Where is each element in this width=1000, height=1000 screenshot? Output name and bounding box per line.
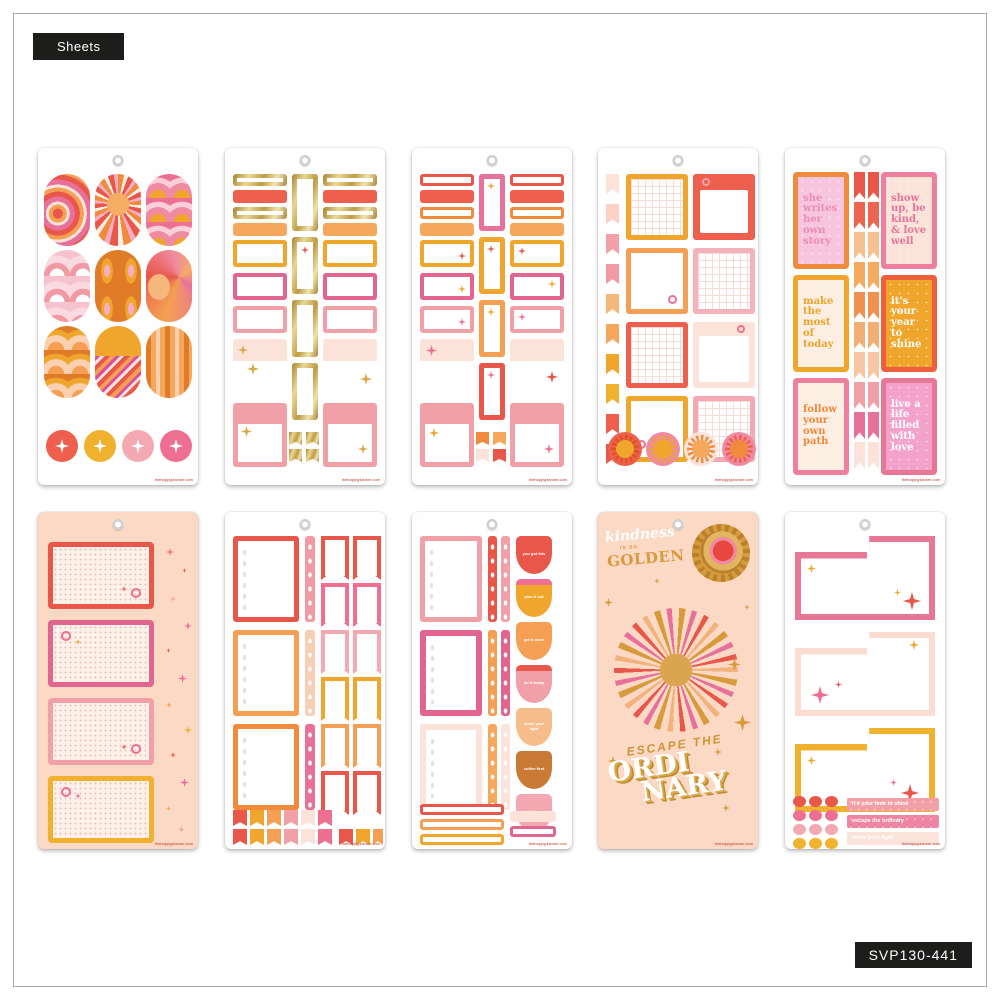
deco-star: [170, 752, 176, 758]
outline-bar-sticker: [510, 826, 556, 837]
hole-punch: [860, 519, 871, 530]
starburst-circle-sticker: [84, 430, 116, 462]
badge-text: get it done: [524, 637, 544, 642]
gold-tab-sticker: [306, 449, 319, 462]
banner-flag-sticker: [321, 583, 349, 627]
tall-box-sticker: [479, 300, 505, 357]
outline-box-sticker: [420, 306, 474, 333]
escape-the-ordinary-sticker: ESCAPE THE ORDI NARY: [598, 727, 758, 811]
checklist-box-sticker: [420, 630, 482, 716]
dot-strip-sticker: [488, 724, 497, 810]
quote-text: show up, be kind, & love well: [891, 194, 927, 248]
bar-text: it's your time to shine: [852, 801, 909, 807]
starburst-circle-sticker: [46, 430, 78, 462]
flag-tab-sticker: [606, 384, 619, 404]
tall-box-sticker: [479, 363, 505, 420]
tab-sticker: [250, 810, 264, 826]
text-bar-sticker: it's your time to shine: [847, 798, 939, 811]
dot-strip-sticker: [305, 536, 315, 622]
dot-strip-sticker: [305, 724, 315, 810]
badge-text: do it today: [524, 680, 544, 685]
sun-circle-sticker: [646, 432, 680, 466]
outline-box-sticker: [420, 240, 474, 267]
oval-sticker-waves: [146, 326, 192, 398]
flag-tab-sticker: [868, 412, 879, 439]
deco-star: [182, 568, 187, 573]
flag-tab-sticker: [606, 204, 619, 224]
sun-circle-sticker: [722, 432, 756, 466]
badge-text: coffee first: [524, 766, 544, 771]
outline-box-sticker: [510, 240, 564, 267]
half-box-sticker: [510, 403, 564, 467]
sun-face: [148, 274, 170, 300]
bar-text: shine your light: [852, 835, 893, 841]
dot-sticker: [809, 824, 822, 835]
dot-strip-sticker: [501, 536, 510, 622]
outline-box-sticker: [510, 306, 564, 333]
dot-sticker: [793, 810, 806, 821]
half-box-sticker: [510, 339, 564, 397]
dot-strip-sticker: [305, 630, 315, 716]
watermark: thehappyplanner.com: [529, 477, 567, 482]
starburst-circle-sticker: [160, 430, 192, 462]
deco-star: [184, 726, 192, 734]
flag-tab-sticker: [854, 262, 865, 289]
tab-sticker: [301, 810, 315, 826]
hole-punch: [300, 155, 311, 166]
hole-punch: [487, 155, 498, 166]
solid-bar-sticker: [420, 223, 474, 236]
flag-tab-sticker: [854, 412, 865, 439]
deco-star: [604, 598, 613, 607]
quote-sticker: it's your year to shine: [881, 275, 937, 372]
watermark: thehappyplanner.com: [902, 841, 940, 846]
flag-tab-sticker: [854, 172, 865, 199]
flag-tab-sticker: [854, 382, 865, 409]
sticker-sheet-checklists-flags: thehappyplanner.com: [225, 512, 385, 849]
dot-strip-sticker: [488, 630, 497, 716]
flag-tab-sticker: [606, 324, 619, 344]
sheets-tab[interactable]: Sheets: [33, 33, 124, 60]
flag-tab-sticker: [868, 292, 879, 319]
sun-circle-sticker: [608, 432, 642, 466]
solid-bar-sticker: [510, 811, 556, 822]
badge-text: shine your light: [521, 721, 547, 731]
banner-flag-sticker: [353, 583, 381, 627]
flag-tab-sticker: [854, 292, 865, 319]
quote-sticker: follow your own path: [793, 378, 849, 475]
dot-sticker: [809, 838, 822, 849]
half-box-sticker: [323, 339, 377, 397]
gold-tall-box-sticker: [292, 237, 318, 294]
deco-star: [170, 596, 176, 602]
outline-box-sticker: [510, 273, 564, 300]
quote-text: make the most of today: [803, 297, 839, 351]
watermark: thehappyplanner.com: [902, 477, 940, 482]
checklist-box-sticker: [420, 536, 482, 622]
tab-sticker: [267, 829, 281, 845]
gold-outline-bar-sticker: [323, 174, 377, 186]
outline-box-sticker: [323, 273, 377, 300]
product-code-badge: SVP130-441: [855, 942, 972, 968]
gold-tab-sticker: [289, 432, 302, 445]
flag-tab-sticker: [868, 202, 879, 229]
quote-text: follow your own path: [803, 405, 839, 448]
dotted-box-sticker: [48, 542, 154, 609]
gold-outline-bar-sticker: [233, 207, 287, 219]
tab-sticker: [284, 829, 298, 845]
half-box-sticker: [420, 403, 474, 467]
outline-bar-sticker: [510, 174, 564, 186]
banner-flag-sticker: [321, 724, 349, 768]
grid-box-sticker: [626, 322, 688, 388]
sticker-sheet-folder-boxes: it's your time to shine escape the ordin…: [785, 512, 945, 849]
watermark: thehappyplanner.com: [529, 841, 567, 846]
banner-flag-sticker: [353, 630, 381, 674]
text-bar-sticker: escape the ordinary: [847, 815, 939, 828]
flag-tab-sticker: [854, 442, 865, 469]
checklist-box-sticker: [233, 536, 299, 622]
dot-strip-sticker: [488, 536, 497, 622]
sticker-sheet-dotted-boxes: thehappyplanner.com: [38, 512, 198, 849]
badge-sticker: coffee first: [516, 751, 552, 789]
outline-bar-sticker: [420, 834, 504, 845]
banner-flag-sticker: [353, 771, 381, 815]
deco-star: [178, 826, 185, 833]
deco-star: [166, 548, 174, 556]
badge-sticker: plan it out: [516, 579, 552, 617]
header-box-sticker: [693, 322, 755, 388]
deco-star: [166, 806, 171, 811]
badge-sticker: get it done: [516, 622, 552, 660]
oval-sticker-sunset-chevron: [95, 326, 141, 398]
starburst-circle-sticker: [122, 430, 154, 462]
header-box-sticker: [693, 174, 755, 240]
solid-bar-sticker: [323, 190, 377, 203]
quote-text: it's your year to shine: [891, 297, 927, 351]
hole-punch: [487, 519, 498, 530]
solid-bar-sticker: [510, 190, 564, 203]
oval-sticker-scallop-pink: [44, 250, 90, 322]
oval-sticker-swirl: [44, 174, 90, 246]
sticker-sheet-gold-labels: thehappyplanner.com: [225, 148, 385, 485]
badge-text: plan it out: [524, 594, 543, 599]
outline-box-sticker: [233, 306, 287, 333]
folder-grid-box-sticker: [795, 536, 935, 620]
badge-text: you got this: [523, 551, 546, 556]
dot-sticker: [793, 796, 806, 807]
badge-sticker: do it today: [516, 665, 552, 703]
hole-punch: [860, 155, 871, 166]
banner-flag-sticker: [353, 724, 381, 768]
checklist-box-sticker: [233, 724, 299, 810]
sticker-sheet-escape-the-ordinary: kindness is so GOLDEN ESCAPE THE ORDI NA…: [598, 512, 758, 849]
banner-flag-sticker: [353, 536, 381, 580]
dot-sticker: [825, 796, 838, 807]
tab-sticker: [493, 449, 506, 462]
half-box-sticker: [233, 403, 287, 467]
watermark: thehappyplanner.com: [715, 477, 753, 482]
banner-flag-sticker: [321, 536, 349, 580]
tab-sticker: [233, 810, 247, 826]
quote-text: live a life filled with love: [891, 400, 927, 454]
outline-bar-sticker: [420, 207, 474, 219]
gold-outline-bar-sticker: [233, 174, 287, 186]
tab-sticker: [267, 810, 281, 826]
watermark: thehappyplanner.com: [342, 477, 380, 482]
banner-flag-sticker: [321, 677, 349, 721]
flag-tab-sticker: [854, 202, 865, 229]
deco-star: [654, 578, 660, 584]
quote-sticker: she writes her own story: [793, 172, 849, 269]
gold-tab-sticker: [289, 449, 302, 462]
dot-sticker: [809, 810, 822, 821]
gold-outline-bar-sticker: [323, 207, 377, 219]
oval-sticker-sunburst: [95, 174, 141, 246]
dot-sticker: [825, 838, 838, 849]
quote-sticker: make the most of today: [793, 275, 849, 372]
deco-star: [178, 674, 187, 683]
hole-punch: [300, 519, 311, 530]
tall-box-sticker: [479, 174, 505, 231]
deco-star: [180, 778, 189, 787]
checklist-box-sticker: [420, 724, 482, 810]
flag-tab-sticker: [868, 442, 879, 469]
half-box-sticker: [420, 339, 474, 397]
deco-star: [744, 604, 750, 610]
banner-flag-sticker: [353, 677, 381, 721]
tab-sticker: [318, 810, 332, 826]
flag-tab-sticker: [868, 352, 879, 379]
outline-box-sticker: [323, 306, 377, 333]
watermark: thehappyplanner.com: [342, 841, 380, 846]
folder-grid-box-sticker: [795, 632, 935, 716]
outline-box-sticker: [626, 248, 688, 314]
flag-tab-sticker: [868, 172, 879, 199]
badge-sticker: you got this: [516, 536, 552, 574]
outline-bar-sticker: [420, 804, 504, 815]
dot-strip-sticker: [501, 724, 510, 810]
outline-box-sticker: [420, 273, 474, 300]
tab-sticker: [250, 829, 264, 845]
flag-tab-sticker: [606, 294, 619, 314]
watermark: thehappyplanner.com: [155, 477, 193, 482]
dot-sticker: [809, 796, 822, 807]
flag-tab-sticker: [868, 382, 879, 409]
dotted-box-sticker: [48, 620, 154, 687]
deco-star: [722, 804, 730, 812]
outline-bar-sticker: [510, 207, 564, 219]
tab-sticker: [476, 432, 489, 445]
outline-bar-sticker: [420, 819, 504, 830]
half-box-sticker: [323, 403, 377, 467]
solid-bar-sticker: [420, 190, 474, 203]
sticker-sheet-checklists-badges: you got this plan it out get it done do …: [412, 512, 572, 849]
watermark: thehappyplanner.com: [155, 841, 193, 846]
quote-sticker: live a life filled with love: [881, 378, 937, 475]
flag-tab-sticker: [854, 352, 865, 379]
solid-bar-sticker: [233, 190, 287, 203]
bar-text: escape the ordinary: [852, 818, 904, 824]
flag-tab-sticker: [868, 262, 879, 289]
sticker-sheet-squares-suns: thehappyplanner.com: [598, 148, 758, 485]
gold-tall-box-sticker: [292, 174, 318, 231]
tab-sticker: [493, 432, 506, 445]
flag-tab-sticker: [854, 232, 865, 259]
flag-tab-sticker: [606, 264, 619, 284]
flag-tab-sticker: [606, 174, 619, 194]
outline-bar-sticker: [420, 174, 474, 186]
sticker-sheet-colored-labels: thehappyplanner.com: [412, 148, 572, 485]
dot-sticker: [825, 810, 838, 821]
oval-sticker-teardrop: [95, 250, 141, 322]
sunburst-face-sticker: [614, 608, 738, 732]
flag-tab-sticker: [868, 232, 879, 259]
sun-circle-sticker: [684, 432, 718, 466]
dot-strip-sticker: [501, 630, 510, 716]
deco-star: [184, 622, 192, 630]
dot-sticker: [825, 824, 838, 835]
hole-punch: [673, 519, 684, 530]
hole-punch: [673, 155, 684, 166]
sticker-sheet-quotes: she writes her own story show up, be kin…: [785, 148, 945, 485]
banner-flag-sticker: [321, 771, 349, 815]
watermark: thehappyplanner.com: [715, 841, 753, 846]
badge-sticker: shine your light: [516, 708, 552, 746]
dot-sticker: [793, 824, 806, 835]
flag-tab-sticker: [606, 354, 619, 374]
tab-sticker: [318, 829, 332, 845]
tab-sticker: [476, 449, 489, 462]
gold-tall-box-sticker: [292, 300, 318, 357]
outline-box-sticker: [233, 273, 287, 300]
gold-tall-box-sticker: [292, 363, 318, 420]
checklist-box-sticker: [233, 630, 299, 716]
oval-sticker-scallop-orange: [44, 326, 90, 398]
banner-flag-sticker: [321, 630, 349, 674]
quote-sticker: show up, be kind, & love well: [881, 172, 937, 269]
solid-bar-sticker: [510, 223, 564, 236]
half-box-sticker: [233, 339, 287, 397]
tab-sticker: [233, 829, 247, 845]
flag-tab-sticker: [854, 322, 865, 349]
gold-sun-medallion-sticker: [692, 524, 750, 582]
grid-box-sticker: [626, 174, 688, 240]
tab-sticker: [284, 810, 298, 826]
gold-tab-sticker: [306, 432, 319, 445]
hole-punch: [113, 155, 124, 166]
flag-tab-sticker: [868, 322, 879, 349]
dotted-box-sticker: [48, 698, 154, 765]
outline-box-sticker: [233, 240, 287, 267]
deco-star: [166, 702, 172, 708]
flag-tab-sticker: [606, 414, 619, 434]
hole-punch: [113, 519, 124, 530]
dotted-box-sticker: [48, 776, 154, 843]
deco-star: [166, 648, 171, 653]
solid-bar-sticker: [233, 223, 287, 236]
kindness-is-golden-sticker: kindness is so GOLDEN: [604, 522, 695, 571]
dot-sticker: [793, 838, 806, 849]
grid-box-sticker: [693, 248, 755, 314]
tab-sticker: [301, 829, 315, 845]
flag-tab-sticker: [606, 234, 619, 254]
quote-text: she writes her own story: [803, 194, 839, 248]
sticker-sheet-retro-ovals: thehappyplanner.com: [38, 148, 198, 485]
solid-bar-sticker: [323, 223, 377, 236]
oval-sticker-sun-face: [146, 250, 192, 322]
outline-box-sticker: [323, 240, 377, 267]
tall-box-sticker: [479, 237, 505, 294]
oval-sticker-scallop: [146, 174, 192, 246]
